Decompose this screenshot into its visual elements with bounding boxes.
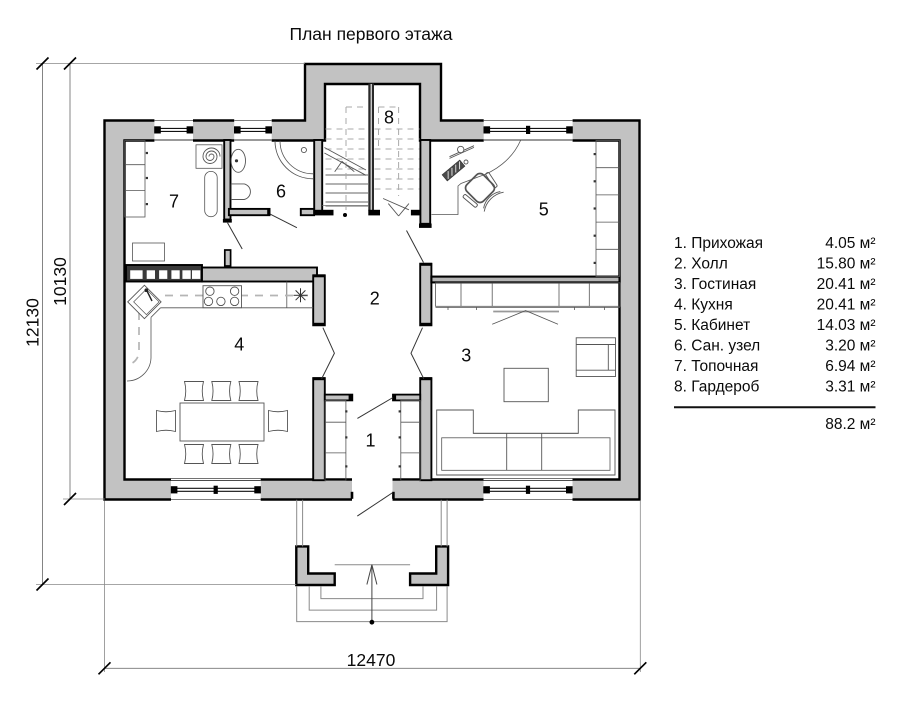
svg-text:20.41 м²: 20.41 м² [817, 276, 876, 293]
svg-text:12130: 12130 [23, 298, 43, 347]
svg-text:7: 7 [169, 192, 179, 212]
svg-text:3: 3 [461, 345, 471, 365]
svg-text:20.41 м²: 20.41 м² [817, 297, 876, 314]
svg-text:4: 4 [234, 335, 244, 355]
svg-text:5. Кабинет: 5. Кабинет [674, 317, 750, 334]
svg-text:5: 5 [539, 199, 549, 219]
svg-text:2: 2 [370, 289, 380, 309]
svg-text:3.31 м²: 3.31 м² [825, 379, 875, 396]
svg-text:3.20 м²: 3.20 м² [825, 338, 875, 355]
svg-text:4.05 м²: 4.05 м² [825, 235, 875, 252]
svg-text:1. Прихожая: 1. Прихожая [674, 235, 763, 252]
svg-text:8. Гардероб: 8. Гардероб [674, 379, 760, 396]
svg-text:3. Гостиная: 3. Гостиная [674, 276, 756, 293]
svg-text:7. Топочная: 7. Топочная [674, 358, 758, 375]
svg-text:88.2 м²: 88.2 м² [825, 416, 875, 433]
svg-text:План первого этажа: План первого этажа [290, 24, 453, 44]
svg-text:2. Холл: 2. Холл [674, 256, 728, 273]
svg-text:6. Сан. узел: 6. Сан. узел [674, 338, 760, 355]
svg-text:10130: 10130 [50, 257, 70, 306]
svg-text:8: 8 [384, 108, 394, 128]
svg-text:4. Кухня: 4. Кухня [674, 297, 733, 314]
svg-text:15.80 м²: 15.80 м² [817, 256, 876, 273]
svg-text:6: 6 [276, 182, 286, 202]
svg-text:1: 1 [365, 430, 375, 450]
svg-text:12470: 12470 [347, 650, 396, 670]
svg-text:6.94 м²: 6.94 м² [825, 358, 875, 375]
svg-text:14.03 м²: 14.03 м² [817, 317, 876, 334]
